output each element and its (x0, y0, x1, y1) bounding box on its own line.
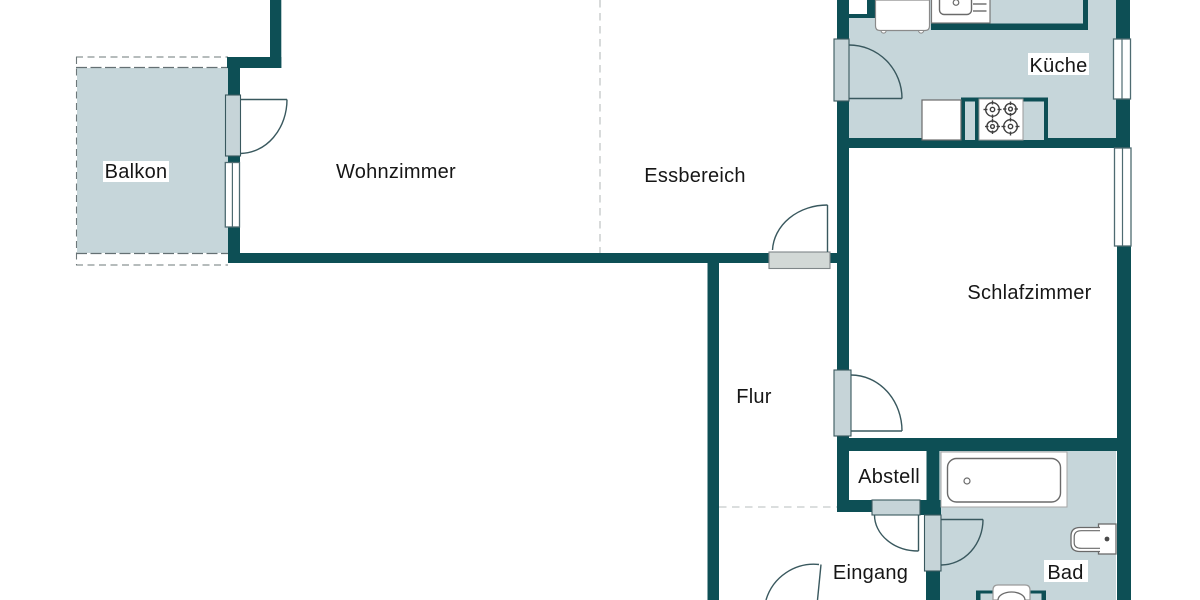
svg-text:Flur: Flur (736, 386, 772, 408)
svg-text:Bad: Bad (1047, 562, 1083, 584)
svg-text:Essbereich: Essbereich (644, 165, 745, 187)
svg-text:Küche: Küche (1030, 55, 1088, 77)
svg-text:Wohnzimmer: Wohnzimmer (336, 161, 456, 183)
svg-text:Balkon: Balkon (105, 161, 168, 183)
svg-text:Eingang: Eingang (833, 562, 908, 584)
svg-text:Schlafzimmer: Schlafzimmer (967, 282, 1091, 304)
svg-text:Abstell: Abstell (858, 466, 920, 488)
